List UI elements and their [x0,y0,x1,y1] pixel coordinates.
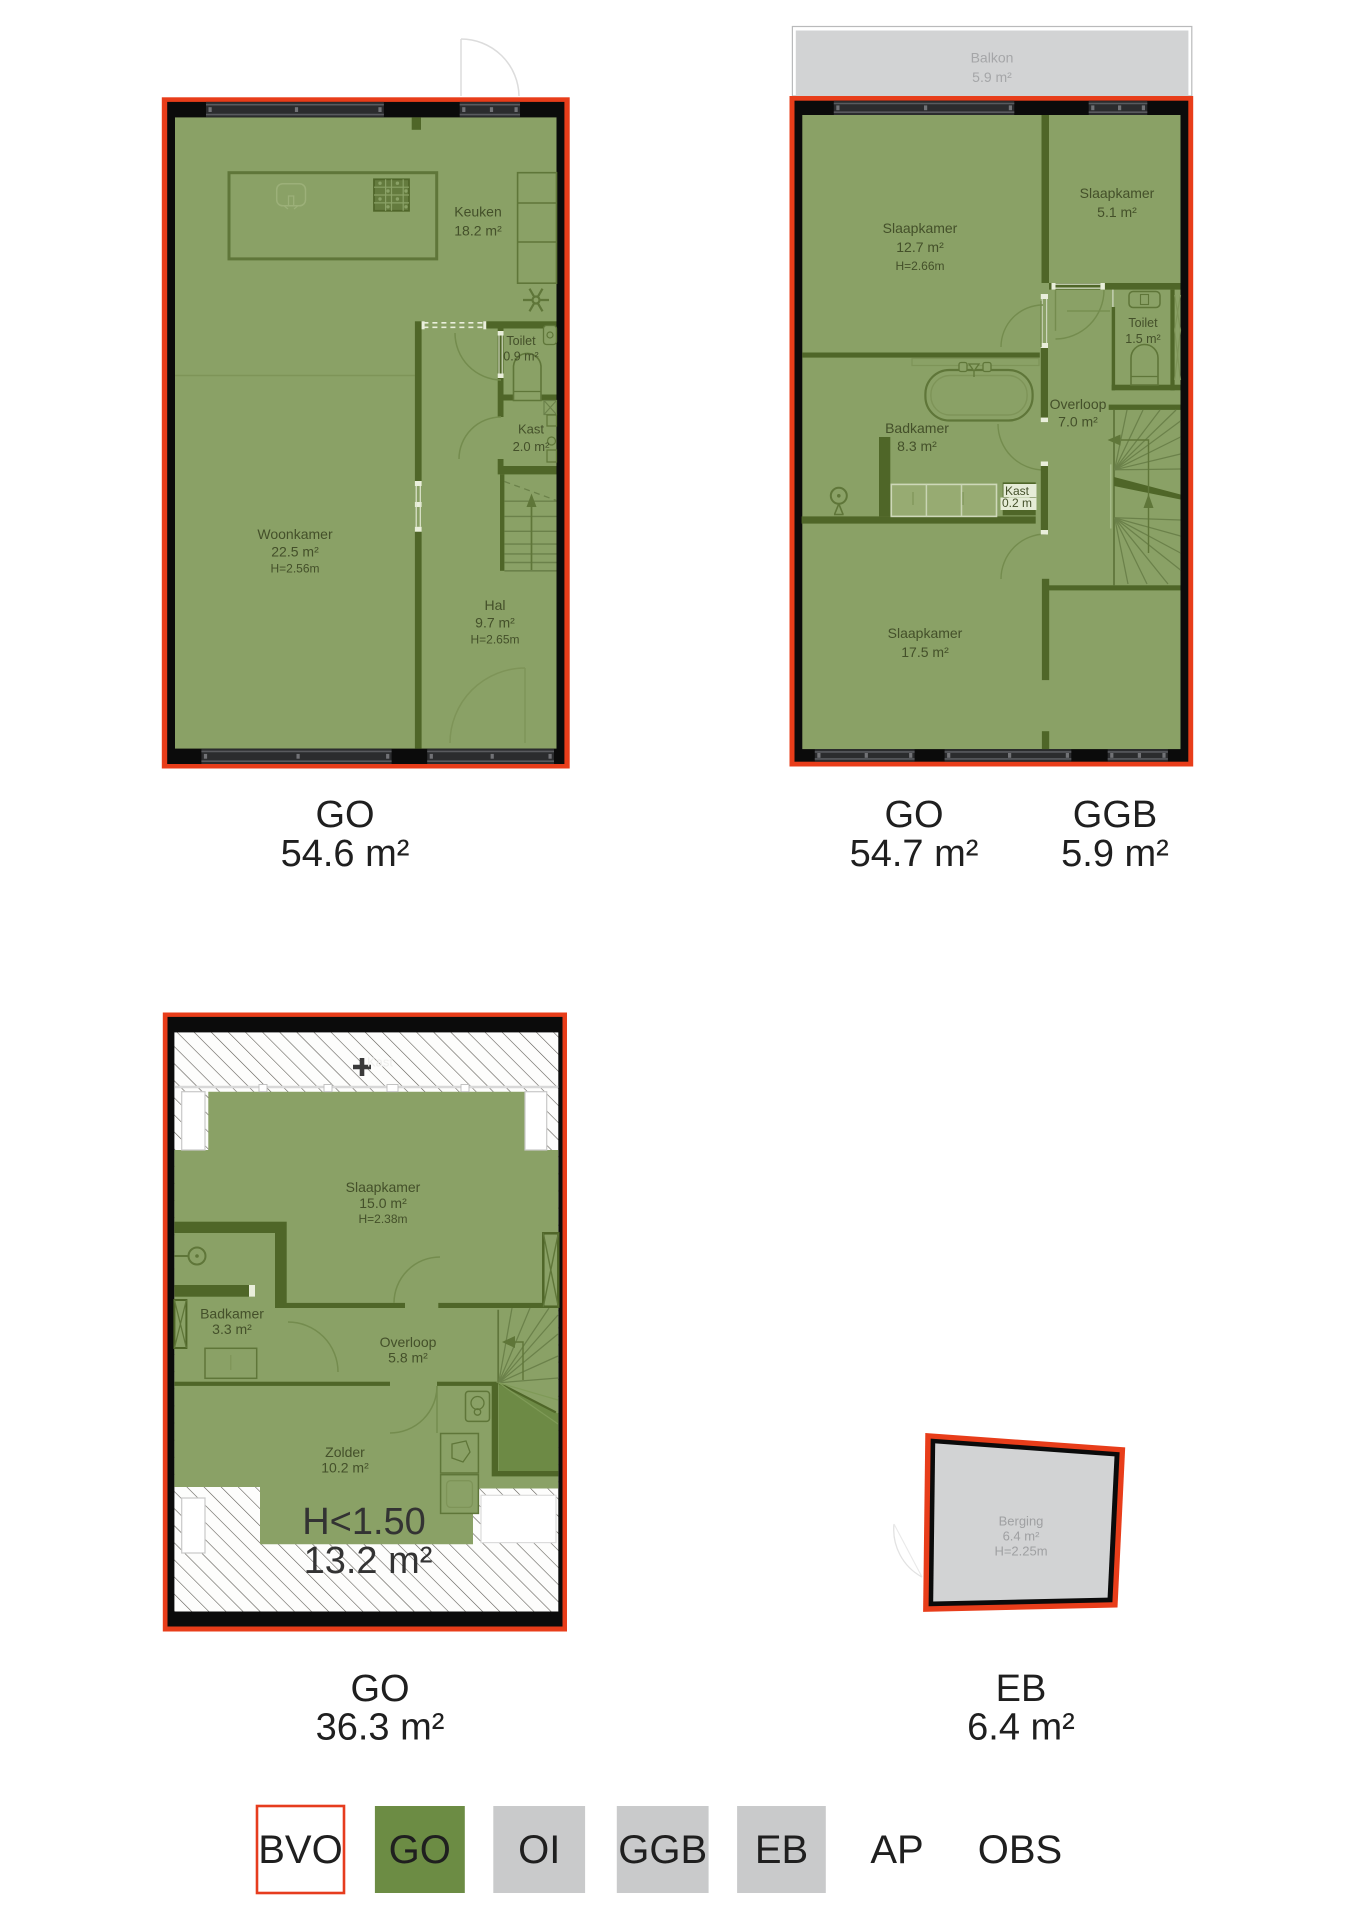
svg-text:Badkamer: Badkamer [885,420,949,436]
svg-text:OBS: OBS [978,1828,1062,1872]
svg-text:Slaapkamer: Slaapkamer [346,1179,421,1195]
svg-text:Woonkamer: Woonkamer [257,526,333,542]
svg-text:Balkon: Balkon [971,50,1014,66]
svg-text:GO: GO [350,1668,409,1710]
svg-text:17.5 m²: 17.5 m² [901,644,949,660]
svg-text:Toilet: Toilet [1128,316,1158,330]
svg-text:0.9 m²: 0.9 m² [503,350,538,364]
svg-text:AP: AP [870,1828,923,1872]
svg-text:36.3 m²: 36.3 m² [316,1707,445,1749]
svg-text:3.3 m²: 3.3 m² [212,1321,252,1337]
svg-text:15.0 m²: 15.0 m² [359,1195,407,1211]
svg-text:GO: GO [315,794,374,836]
svg-text:EB: EB [755,1828,808,1872]
svg-text:13.2 m²: 13.2 m² [304,1540,433,1582]
svg-text:12.7 m²: 12.7 m² [896,239,944,255]
svg-text:1.5 m²: 1.5 m² [1125,332,1160,346]
svg-text:5.9 m²: 5.9 m² [972,69,1012,85]
svg-text:5.9 m²: 5.9 m² [1061,833,1169,875]
svg-text:Hal: Hal [484,597,505,613]
svg-text:Berging: Berging [999,1514,1044,1529]
svg-text:9.7 m²: 9.7 m² [475,615,515,631]
svg-text:10.2 m²: 10.2 m² [321,1460,369,1476]
svg-text:54.6 m²: 54.6 m² [281,833,410,875]
svg-text:H<1.50: H<1.50 [302,1501,426,1543]
svg-text:22.5 m²: 22.5 m² [271,544,319,560]
svg-text:7.0 m²: 7.0 m² [1058,414,1098,430]
svg-text:BVO: BVO [258,1828,342,1872]
svg-text:H=2.65m: H=2.65m [470,633,519,647]
svg-text:Zolder: Zolder [325,1444,365,1460]
svg-text:H=2.56m: H=2.56m [270,562,319,576]
svg-text:Slaapkamer: Slaapkamer [1080,185,1155,201]
svg-text:Overloop: Overloop [1050,396,1107,412]
svg-text:OI: OI [518,1828,560,1872]
svg-text:Slaapkamer: Slaapkamer [888,625,963,641]
svg-text:GGB: GGB [618,1828,707,1872]
svg-text:H=2.66m: H=2.66m [895,259,944,273]
svg-text:GGB: GGB [1073,794,1157,836]
svg-text:6.4 m²: 6.4 m² [1003,1529,1041,1544]
svg-text:Slaapkamer: Slaapkamer [883,220,958,236]
svg-text:8.3 m²: 8.3 m² [897,438,937,454]
svg-text:Overloop: Overloop [380,1334,437,1350]
svg-text:Toilet: Toilet [506,334,536,348]
svg-text:EB: EB [996,1668,1047,1710]
svg-text:H=2.25m: H=2.25m [994,1544,1047,1559]
svg-text:GO: GO [389,1828,451,1872]
svg-text:6.4 m²: 6.4 m² [967,1707,1075,1749]
svg-text:2.0 m²: 2.0 m² [513,439,551,454]
svg-text:Kast: Kast [518,422,544,437]
svg-text:5.1 m²: 5.1 m² [1097,204,1137,220]
svg-text:H=2.38m: H=2.38m [358,1212,407,1226]
svg-text:18.2 m²: 18.2 m² [454,223,502,239]
svg-text:54.7 m²: 54.7 m² [850,833,979,875]
svg-text:Badkamer: Badkamer [200,1306,264,1322]
svg-text:GO: GO [884,794,943,836]
svg-text:5.8 m²: 5.8 m² [388,1350,428,1366]
svg-text:Kast: Kast [367,1055,393,1070]
svg-text:Keuken: Keuken [454,204,501,220]
svg-text:0.2 m: 0.2 m [1002,496,1032,510]
